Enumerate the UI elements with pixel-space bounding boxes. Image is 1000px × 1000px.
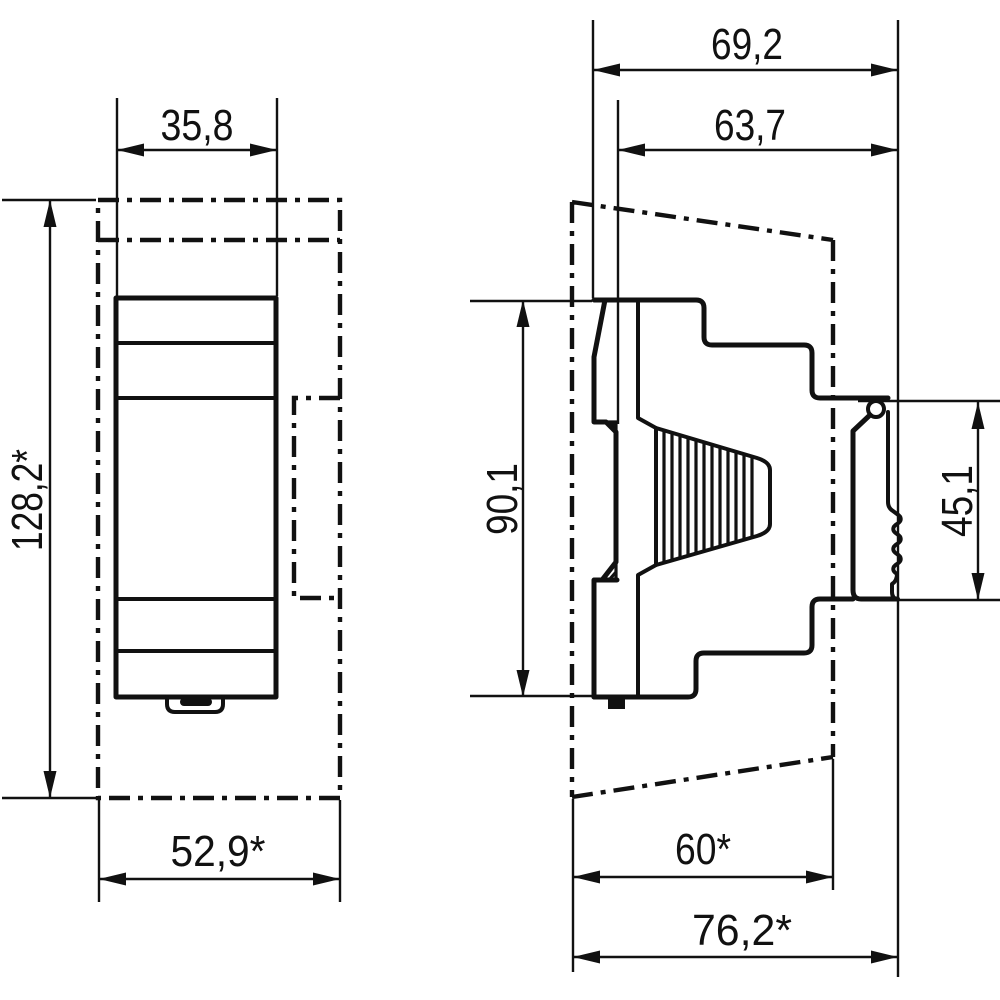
technical-drawing-page: 35,8 128,2* 52,9* 69,2 63,7 90,1 45,1 60… [0,0,1000,1000]
dim-label-rail-height: 45,1 [933,465,982,537]
dim-label-total-clearance-depth: 76,2* [692,906,792,955]
dim-label-overall-height: 128,2* [3,449,52,551]
dim-label-clearance-depth: 60* [675,825,731,874]
dim-label-overall-width: 52,9* [171,827,266,876]
dimension-drawing: 35,8 128,2* 52,9* 69,2 63,7 90,1 45,1 60… [0,0,1000,1000]
dim-label-module-width: 35,8 [161,101,234,150]
dim-label-overall-depth: 69,2 [711,20,783,69]
dim-label-depth-above-rail: 63,7 [714,101,786,150]
front-clip-tab-grip [180,698,212,706]
side-clip-release-tab [608,697,625,709]
dim-label-body-height: 90,1 [478,463,527,535]
